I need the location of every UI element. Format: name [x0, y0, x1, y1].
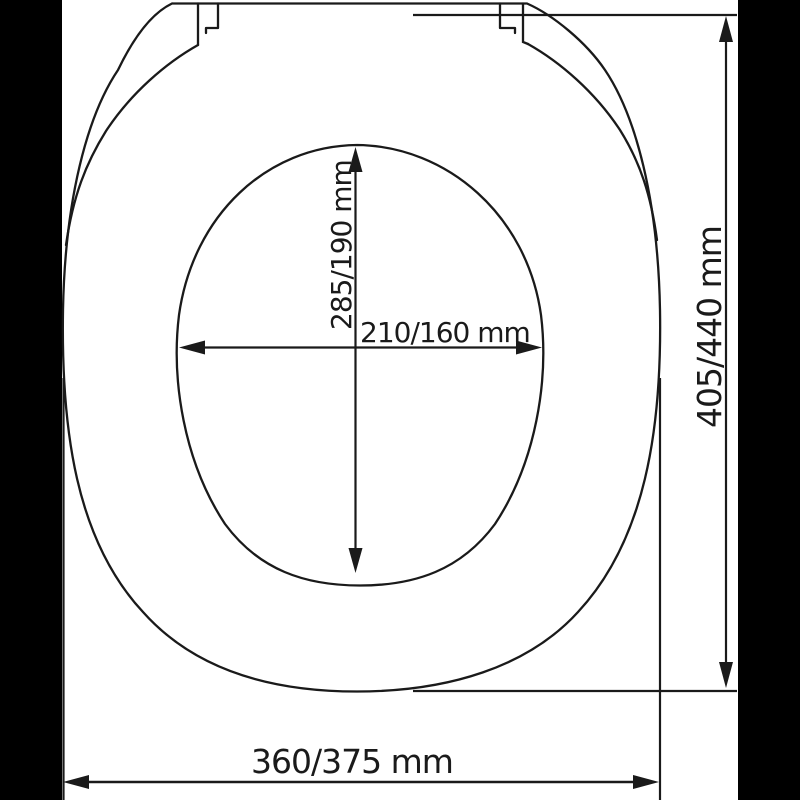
inner-width-label: 210/160 mm: [360, 316, 530, 349]
diagram-canvas: 285/190 mm 210/160 mm 405/440 mm 360/375…: [0, 0, 800, 800]
canvas-background: [0, 0, 800, 800]
inner-length-label: 285/190 mm: [325, 160, 358, 330]
outer-width-label: 360/375 mm: [251, 742, 453, 781]
product-dimension-diagram: 285/190 mm 210/160 mm 405/440 mm 360/375…: [0, 0, 800, 800]
outer-length-label: 405/440 mm: [690, 226, 729, 428]
right-letterbox-bar: [738, 0, 800, 800]
left-letterbox-bar: [0, 0, 62, 800]
